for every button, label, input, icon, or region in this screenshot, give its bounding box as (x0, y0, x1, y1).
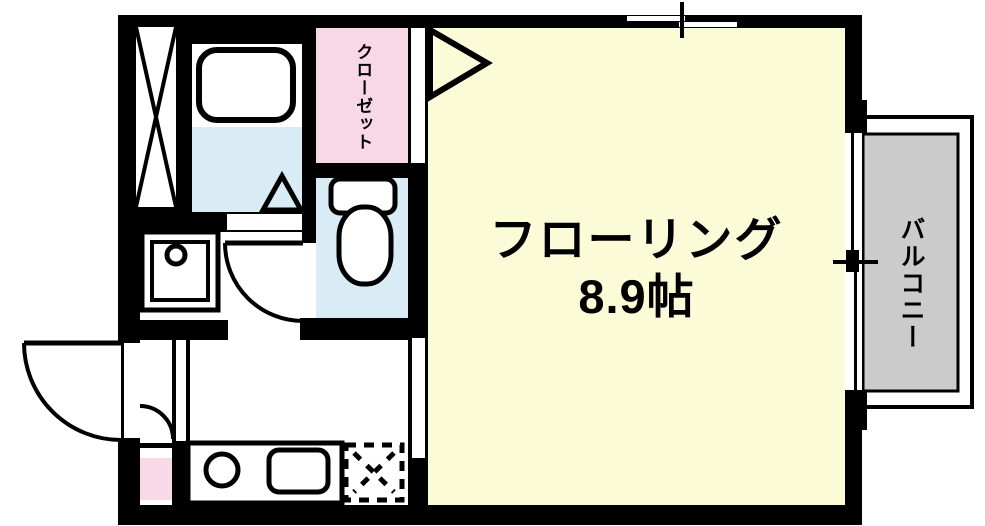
kitchen-stove (269, 450, 328, 492)
toilet-bowl (339, 207, 391, 284)
wall-bath-closet (302, 15, 316, 243)
bathtub (199, 50, 293, 120)
wall-stub-window-top (845, 100, 867, 133)
genkan-door-arc (140, 406, 173, 439)
genkan-step-line-right (186, 335, 190, 445)
balcony-window-pane-line-2 (854, 252, 857, 390)
washroom-door-arc (225, 243, 303, 321)
refrigerator-space (346, 445, 402, 500)
balcony-label: バルコニー (863, 178, 958, 388)
closet-label: クローゼット (316, 36, 408, 158)
entry-door-jamb-line (121, 343, 124, 438)
kitchen-counter (188, 443, 342, 503)
wall-toilet-bottom (300, 318, 428, 340)
genkan-step-edge (138, 443, 190, 448)
wall-top (316, 15, 862, 28)
top-window-pane-left (627, 16, 685, 21)
wall-bottom (118, 505, 862, 525)
pipe-shaft (136, 27, 176, 207)
bathroom-door-sill (227, 214, 302, 230)
kitchen-sink (206, 454, 238, 486)
closet-door-opening (411, 28, 425, 163)
entry-door-arc (24, 343, 121, 440)
wall-stub-window-bottom (845, 390, 867, 430)
balcony-window-pane-line-1 (851, 133, 854, 270)
kitchen-room-door-opening (412, 338, 425, 458)
washing-machine-pan (142, 232, 218, 310)
washer-drain (167, 246, 185, 264)
wall-closet-toilet (302, 163, 408, 178)
main-room-name: フローリング (428, 215, 845, 266)
bathroom-floor (192, 127, 302, 212)
main-room-area: 8.9帖 (428, 272, 845, 323)
floor-plan: フローリング 8.9帖 クローゼット バルコニー (0, 0, 985, 526)
toilet (331, 179, 395, 284)
genkan-mat (138, 458, 172, 500)
top-window-pane-right (679, 22, 737, 27)
main-room-label: フローリング 8.9帖 (428, 215, 845, 323)
